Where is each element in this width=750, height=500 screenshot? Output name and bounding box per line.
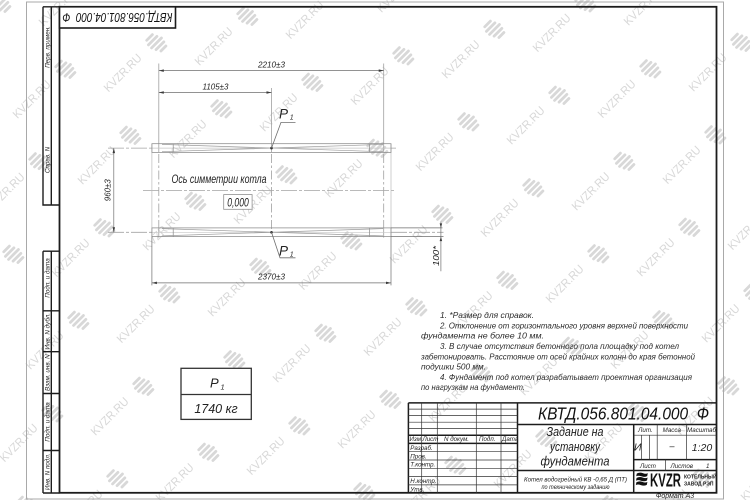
svg-text:Утв.: Утв. bbox=[409, 487, 424, 494]
svg-text:1740 кг: 1740 кг bbox=[194, 402, 237, 416]
svg-text:4. Фундамент под котел разраб: 4. Фундамент под котел разрабатывает про… bbox=[440, 372, 692, 382]
svg-text:Масштаб: Масштаб bbox=[687, 427, 716, 434]
svg-text:Т.контр.: Т.контр. bbox=[410, 462, 435, 469]
svg-text:2370±3: 2370±3 bbox=[257, 272, 285, 282]
svg-text:P: P bbox=[279, 244, 288, 259]
svg-text:100*: 100* bbox=[431, 245, 441, 266]
svg-text:0,000: 0,000 bbox=[227, 198, 249, 210]
svg-text:фундамента не более 10 мм.: фундамента не более 10 мм. bbox=[421, 331, 544, 341]
svg-text:N докум.: N докум. bbox=[444, 436, 469, 443]
svg-text:подушки 500 мм.: подушки 500 мм. bbox=[421, 362, 486, 372]
svg-text:Подп.: Подп. bbox=[479, 436, 495, 443]
svg-text:2210±3: 2210±3 bbox=[257, 60, 285, 70]
svg-text:1: 1 bbox=[290, 115, 294, 122]
svg-text:KVZR: KVZR bbox=[650, 471, 681, 491]
svg-text:Пров.: Пров. bbox=[410, 453, 426, 460]
svg-text:Формат А3: Формат А3 bbox=[656, 493, 694, 500]
svg-text:КВТД.056.801.04.000 Ф: КВТД.056.801.04.000 Ф bbox=[62, 10, 172, 24]
svg-text:Подп. и дата: Подп. и дата bbox=[44, 258, 52, 298]
svg-text:1: 1 bbox=[290, 252, 294, 259]
svg-text:1: 1 bbox=[706, 463, 709, 470]
svg-text:–: – bbox=[668, 441, 675, 451]
svg-text:Подп. и дата: Подп. и дата bbox=[44, 402, 52, 442]
svg-text:1. *Размер для справок.: 1. *Размер для справок. bbox=[440, 310, 534, 320]
svg-text:Лит.: Лит. bbox=[637, 427, 653, 434]
svg-text:1:20: 1:20 bbox=[692, 442, 713, 454]
svg-text:1: 1 bbox=[221, 383, 225, 392]
svg-text:960±3: 960±3 bbox=[103, 179, 113, 201]
svg-text:по нагрузкам на фундамент.: по нагрузкам на фундамент. bbox=[421, 382, 525, 392]
svg-text:Взам. инв. N: Взам. инв. N bbox=[45, 354, 52, 391]
svg-text:установку: установку bbox=[549, 439, 601, 454]
svg-text:1105±3: 1105±3 bbox=[203, 81, 229, 91]
svg-text:забетонировать. Расстояние от: забетонировать. Расстояние от осей крайн… bbox=[420, 351, 695, 361]
svg-text:Инв. N подл.: Инв. N подл. bbox=[44, 453, 52, 490]
svg-text:фундамента: фундамента bbox=[541, 454, 610, 469]
svg-text:Масса: Масса bbox=[663, 427, 682, 434]
svg-text:Задание на: Задание на bbox=[547, 424, 604, 439]
svg-text:Лист: Лист bbox=[639, 463, 656, 470]
svg-text:КОТЕЛЬНЫЙ: КОТЕЛЬНЫЙ bbox=[684, 473, 717, 481]
svg-text:Дата: Дата bbox=[501, 436, 519, 443]
svg-text:2. Отклонение от горизонтальн: 2. Отклонение от горизонтального уровня … bbox=[439, 320, 688, 330]
svg-text:Листов: Листов bbox=[670, 463, 694, 470]
svg-text:Котел водогрейный КВ -0,65 Д: Котел водогрейный КВ -0,65 Д (ПТ) bbox=[524, 476, 627, 484]
svg-text:Перв. примен.: Перв. примен. bbox=[45, 26, 52, 68]
svg-text:ЗАВОД РЭП: ЗАВОД РЭП bbox=[684, 482, 714, 488]
svg-text:КВТД.056.801.04.000 Ф: КВТД.056.801.04.000 Ф bbox=[538, 404, 709, 424]
svg-text:P: P bbox=[279, 107, 288, 122]
svg-text:P: P bbox=[210, 376, 219, 391]
svg-text:Н.контр.: Н.контр. bbox=[410, 478, 436, 485]
svg-text:3. В случае отсутствия бетонн: 3. В случае отсутствия бетонного пола пл… bbox=[440, 341, 679, 351]
svg-text:Инв. N дубл.: Инв. N дубл. bbox=[44, 313, 52, 349]
svg-text:Справ. N: Справ. N bbox=[45, 146, 52, 173]
svg-text:И: И bbox=[634, 442, 642, 454]
svg-text:по техническому заданию: по техническому заданию bbox=[542, 483, 610, 491]
svg-text:Разраб.: Разраб. bbox=[410, 445, 432, 452]
svg-text:Изм: Изм bbox=[410, 436, 422, 443]
svg-text:Ось симметрии котла: Ось симметрии котла bbox=[172, 172, 267, 186]
svg-text:Лист: Лист bbox=[422, 436, 439, 443]
